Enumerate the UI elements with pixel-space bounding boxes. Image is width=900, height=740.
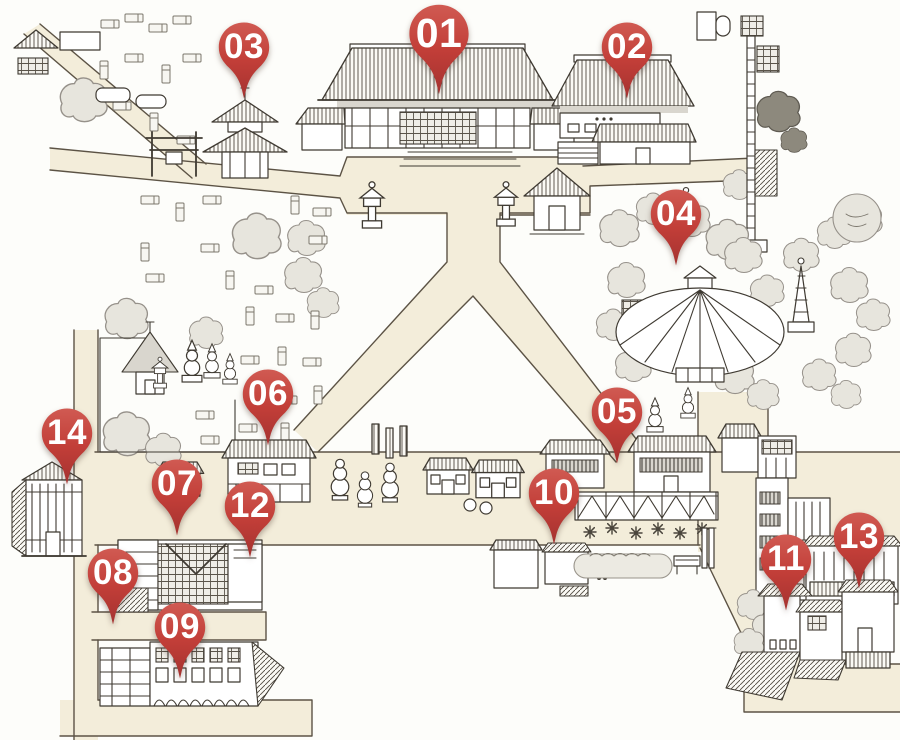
map-pin-05[interactable]: 05 <box>588 386 646 466</box>
pin-number: 05 <box>588 386 646 438</box>
pin-number: 14 <box>38 407 96 459</box>
map-pin-07[interactable]: 07 <box>148 458 206 538</box>
map-pin-09[interactable]: 09 <box>151 601 209 681</box>
map-pin-03[interactable]: 03 <box>215 21 273 101</box>
pin-number: 08 <box>84 547 142 599</box>
map-pin-14[interactable]: 14 <box>38 407 96 487</box>
pin-number: 04 <box>647 188 705 240</box>
map-pins-layer: 01 02 03 04 05 06 07 08 09 10 11 12 13 1… <box>0 0 900 740</box>
map-pin-06[interactable]: 06 <box>239 368 297 448</box>
map-pin-13[interactable]: 13 <box>830 511 888 591</box>
pin-number: 02 <box>598 21 656 73</box>
map-pin-04[interactable]: 04 <box>647 188 705 268</box>
map-pin-12[interactable]: 12 <box>221 480 279 560</box>
pin-number: 11 <box>757 533 815 585</box>
pin-number: 12 <box>221 480 279 532</box>
pin-number: 10 <box>525 467 583 519</box>
map-pin-01[interactable]: 01 <box>405 3 473 97</box>
pin-number: 07 <box>148 458 206 510</box>
pin-number: 13 <box>830 511 888 563</box>
pin-number: 09 <box>151 601 209 653</box>
map-pin-08[interactable]: 08 <box>84 547 142 627</box>
map-pin-02[interactable]: 02 <box>598 21 656 101</box>
pin-number: 01 <box>405 3 473 64</box>
map-pin-10[interactable]: 10 <box>525 467 583 547</box>
pin-number: 03 <box>215 21 273 73</box>
map-pin-11[interactable]: 11 <box>757 533 815 613</box>
pin-number: 06 <box>239 368 297 420</box>
illustrated-map: 01 02 03 04 05 06 07 08 09 10 11 12 13 1… <box>0 0 900 740</box>
